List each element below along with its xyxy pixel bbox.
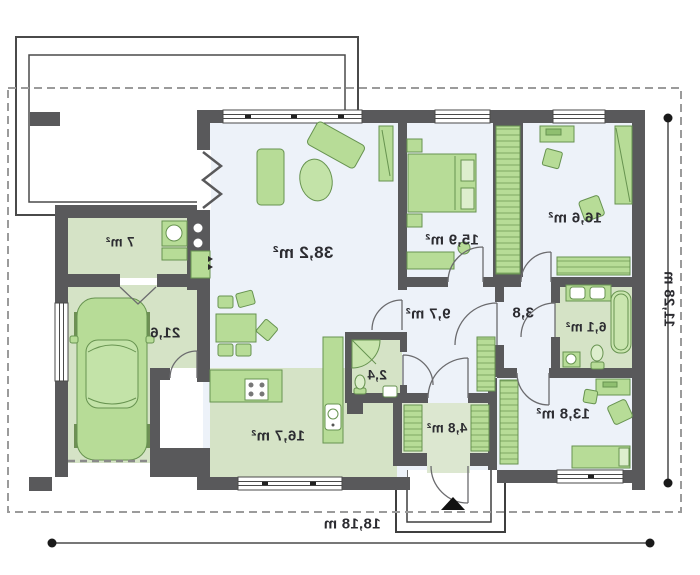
sofa — [257, 149, 284, 205]
washing-machine — [162, 221, 187, 246]
window-bedroom-2 — [553, 110, 605, 123]
bathtub — [611, 291, 631, 353]
floor-plan-drawing — [0, 0, 700, 575]
fireplace — [191, 251, 213, 278]
washer-bath — [563, 352, 580, 367]
desk-2 — [596, 379, 630, 395]
window-garage — [55, 303, 68, 381]
desk-1 — [540, 126, 574, 142]
nightstand — [407, 139, 422, 152]
wardrobe-tall — [615, 126, 632, 204]
wardrobe-strip-entry-right — [471, 405, 489, 451]
wardrobe-strip-bedrooms — [496, 126, 520, 274]
desk-chair-2 — [583, 389, 598, 404]
shower — [352, 340, 380, 368]
car — [70, 298, 154, 460]
wardrobe-strip-3 — [500, 380, 518, 464]
oven — [347, 403, 363, 414]
dresser — [407, 252, 454, 269]
window-bedroom-1 — [435, 110, 490, 123]
wc-sink — [383, 386, 397, 397]
bath-counter — [566, 285, 611, 301]
utility-shelf — [162, 248, 187, 260]
toilet-wc — [354, 375, 366, 394]
toilet — [591, 345, 604, 369]
window-living — [223, 110, 362, 123]
stove — [245, 379, 268, 400]
bed-1 — [408, 154, 476, 212]
desk-chair — [542, 148, 563, 169]
window-bedroom-3 — [557, 470, 623, 483]
floor-plan: 38,2 m² 15,9 m² 16,6 m² 9,7 m² 3,8 6,1 m… — [0, 0, 700, 575]
wardrobe-strip-entry-left — [404, 405, 422, 451]
wardrobe-low — [557, 257, 630, 275]
dining-table — [216, 314, 256, 342]
nightstand — [407, 214, 422, 227]
wardrobe-strip-hall — [477, 337, 495, 391]
window-kitchen — [238, 477, 342, 490]
tv-unit — [379, 126, 393, 181]
bed-2 — [572, 446, 630, 468]
kitchen-sink — [325, 404, 341, 430]
